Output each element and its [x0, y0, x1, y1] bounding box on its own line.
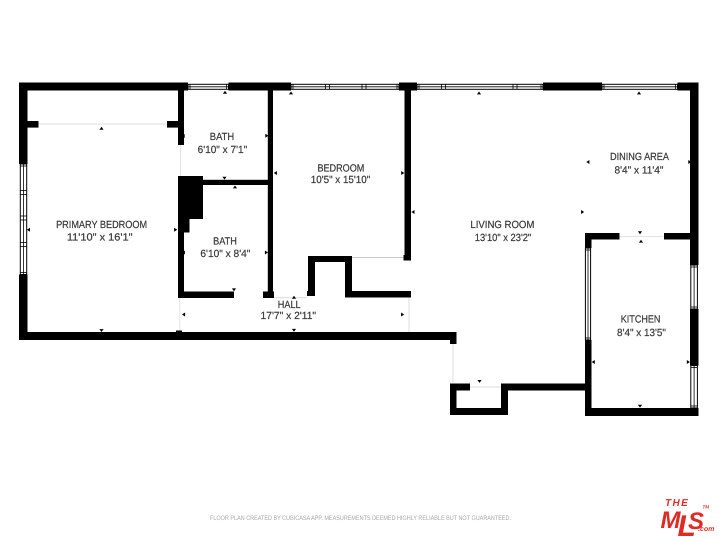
svg-text:8'4" x 13'5": 8'4" x 13'5" — [617, 328, 666, 339]
svg-text:10'5" x 15'10": 10'5" x 15'10" — [311, 175, 371, 186]
svg-text:BATH: BATH — [210, 132, 234, 143]
svg-text:BATH: BATH — [213, 236, 237, 247]
svg-text:HALL: HALL — [278, 300, 301, 311]
svg-text:FLOOR PLAN CREATED BY CUBICASA: FLOOR PLAN CREATED BY CUBICASA APP. MEAS… — [210, 515, 511, 522]
svg-text:13'10" x 23'2": 13'10" x 23'2" — [475, 233, 532, 244]
svg-text:11'10" x 16'1": 11'10" x 16'1" — [67, 232, 133, 243]
svg-text:.com: .com — [698, 526, 714, 533]
svg-text:6'10" x 7'1": 6'10" x 7'1" — [198, 145, 248, 156]
svg-text:TM: TM — [703, 505, 710, 510]
svg-text:17'7" x 2'11": 17'7" x 2'11" — [261, 311, 317, 322]
svg-text:6'10" x 8'4": 6'10" x 8'4" — [200, 249, 250, 260]
svg-text:DINING AREA: DINING AREA — [610, 152, 669, 163]
svg-text:L: L — [678, 510, 696, 540]
svg-text:BEDROOM: BEDROOM — [317, 164, 364, 175]
svg-text:KITCHEN: KITCHEN — [621, 315, 661, 326]
svg-text:8'4" x 11'4": 8'4" x 11'4" — [615, 165, 664, 176]
svg-text:LIVING ROOM: LIVING ROOM — [470, 220, 534, 231]
svg-text:PRIMARY BEDROOM: PRIMARY BEDROOM — [56, 220, 147, 231]
